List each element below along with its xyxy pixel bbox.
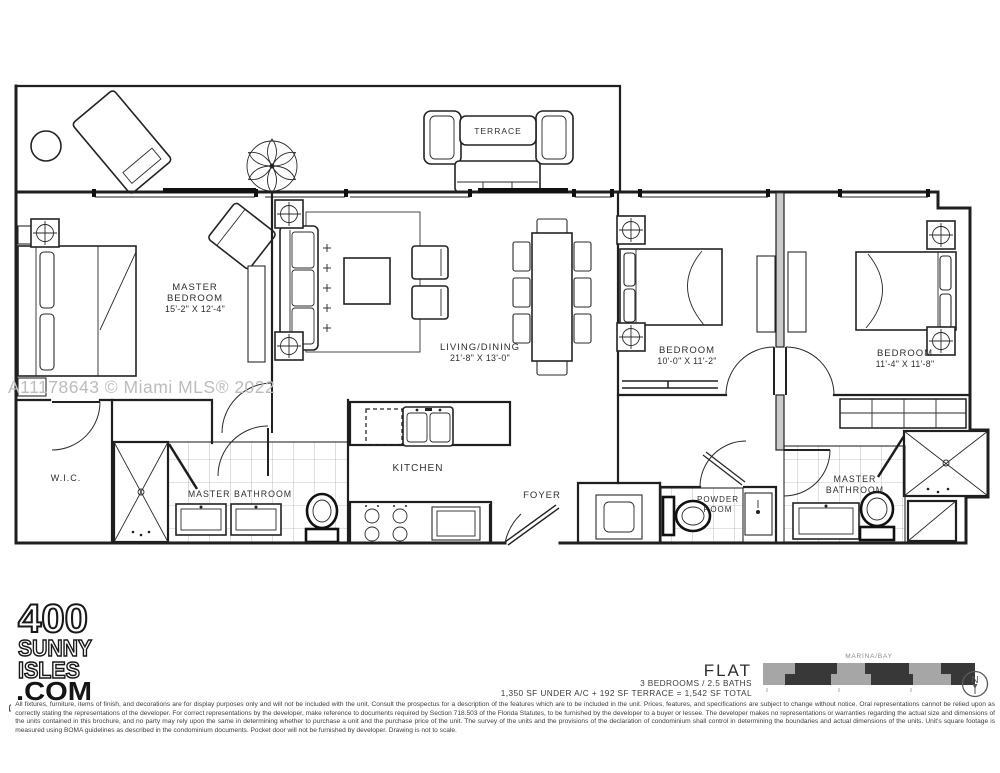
foyer-label: FOYER [523,490,561,501]
master-bed [18,246,136,376]
round-side-table [31,131,61,161]
dining-chair [537,219,567,234]
dining-chair [574,278,591,307]
toilet [860,492,894,540]
bedroom2-furniture [620,249,775,388]
master-bedroom-dims: 15'-2" X 12'-4" [165,304,225,314]
terrace-label: TERRACE [474,126,522,136]
dining-chair [574,242,591,271]
living-dining-label: LIVING/DINING [440,342,520,353]
foyer-closet [578,483,660,543]
coffee-table [344,258,390,304]
dresser [788,252,806,332]
floorplan-drawing: TERRACE MASTER BEDROOM 15'-2" X 12'-4" L… [0,0,1000,600]
column-icon [617,323,645,351]
closet-sliding-doors [622,381,718,388]
disclaimer-text: All fixtures, furniture, items of finish… [15,701,995,736]
rug-pattern-marks [323,244,331,332]
key-plan-location-label: MARINA/BAY [763,653,975,660]
mls-watermark: A11178643 © Miami MLS® 2022 [8,377,275,397]
equal-housing-icon [8,701,11,712]
key-plan-bar [763,663,975,693]
bed [856,252,956,330]
entry-door [505,505,559,545]
dining-set [513,219,591,375]
dishwasher [366,409,402,445]
party-wall [776,192,784,347]
sliding-door [478,188,568,193]
tv-console [248,266,265,362]
svg-text:BATHROOM: BATHROOM [826,485,884,495]
dining-chair [513,278,530,307]
bedroom3-dims: 11'-4" X 11'-8" [876,359,935,369]
sink [745,493,772,535]
powder-room-door [700,441,746,487]
master-bedroom-label: MASTER [172,282,218,293]
bed [620,249,722,325]
cooktop [365,505,407,541]
column-icon [275,332,303,360]
building-key-plan: MARINA/BAY [763,653,975,698]
north-arrow-icon: N [961,670,991,702]
bedroom2-label: BEDROOM [659,345,715,356]
structural-columns [31,200,955,360]
vanity [793,503,859,539]
terrace-loveseat [455,161,540,192]
svg-text:BEDROOM: BEDROOM [167,293,223,304]
column-icon [617,216,645,244]
bedroom3-label: BEDROOM [877,348,933,359]
master-bathroom-left-label: MASTER BATHROOM [188,489,292,499]
dining-chair [513,314,530,343]
column-icon [927,221,955,249]
dining-chair [513,242,530,271]
wic-label: W.I.C. [51,473,82,483]
unit-info: FLAT 3 BEDROOMS / 2.5 BATHS 1,350 SF UND… [501,662,752,698]
dining-table [532,233,572,361]
powder-room-label: POWDER [697,495,739,504]
toilet [306,494,338,542]
linen-closet [908,501,956,541]
double-sink [403,407,453,446]
armchair [412,246,448,279]
dining-chair [574,314,591,343]
terrace-furniture [31,89,573,194]
floorplan-page: TERRACE MASTER BEDROOM 15'-2" X 12'-4" L… [0,0,1000,773]
oven [432,507,480,540]
logo-400-sunny-isles: 400 SUNNY ISLES .COM [16,598,136,710]
armchair [207,202,276,270]
kitchen-label: KITCHEN [393,463,444,474]
master-bathroom-right-label: MASTER [834,474,877,484]
column-icon [31,219,59,247]
dining-chair [537,360,567,375]
unit-area: 1,350 SF UNDER A/C + 192 SF TERRACE = 1,… [501,689,752,699]
armchair [412,286,448,319]
lounge-chair [72,89,173,194]
living-dining-furniture [280,212,591,375]
living-dining-dims: 21'-8" X 13'-0" [450,353,510,363]
svg-text:ROOM: ROOM [704,505,733,514]
sliding-door [163,188,256,193]
disclaimer: All fixtures, furniture, items of finish… [8,701,995,736]
potted-plant [246,139,297,193]
closet [840,399,966,428]
dresser [757,256,775,332]
bedroom2-dims: 10'-0" X 11'-2" [657,356,716,366]
unit-type: FLAT [501,662,752,679]
column-icon [275,200,303,228]
